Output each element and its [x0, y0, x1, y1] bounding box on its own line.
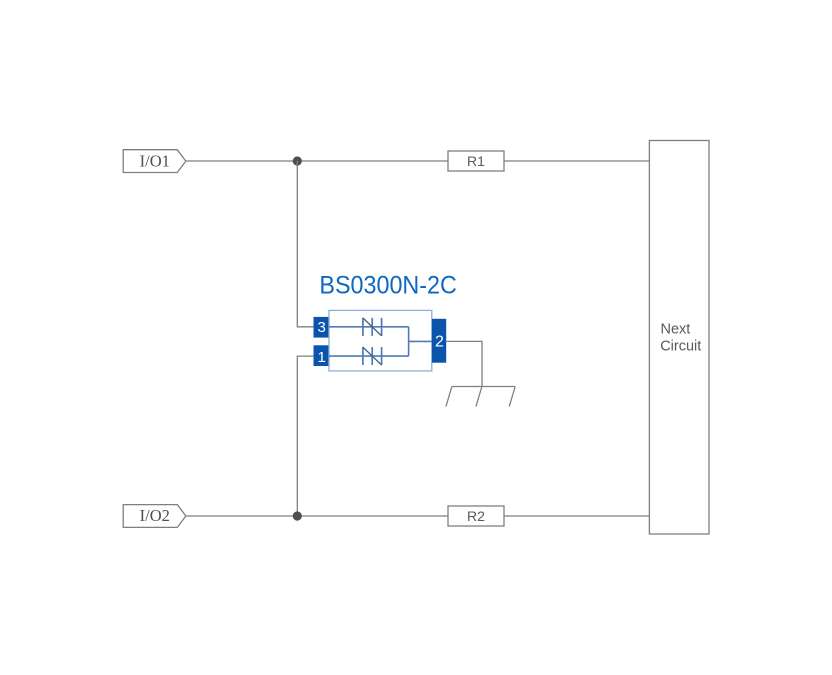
svg-text:1: 1 — [318, 349, 326, 366]
svg-text:I/O1: I/O1 — [140, 151, 170, 170]
svg-text:R2: R2 — [467, 508, 485, 524]
svg-text:Circuit: Circuit — [660, 338, 701, 354]
svg-text:Next: Next — [661, 322, 691, 338]
svg-text:I/O2: I/O2 — [140, 506, 170, 525]
svg-text:3: 3 — [318, 319, 326, 336]
svg-text:2: 2 — [435, 334, 444, 351]
svg-text:BS0300N-2C: BS0300N-2C — [319, 272, 457, 300]
svg-text:R1: R1 — [467, 153, 485, 169]
